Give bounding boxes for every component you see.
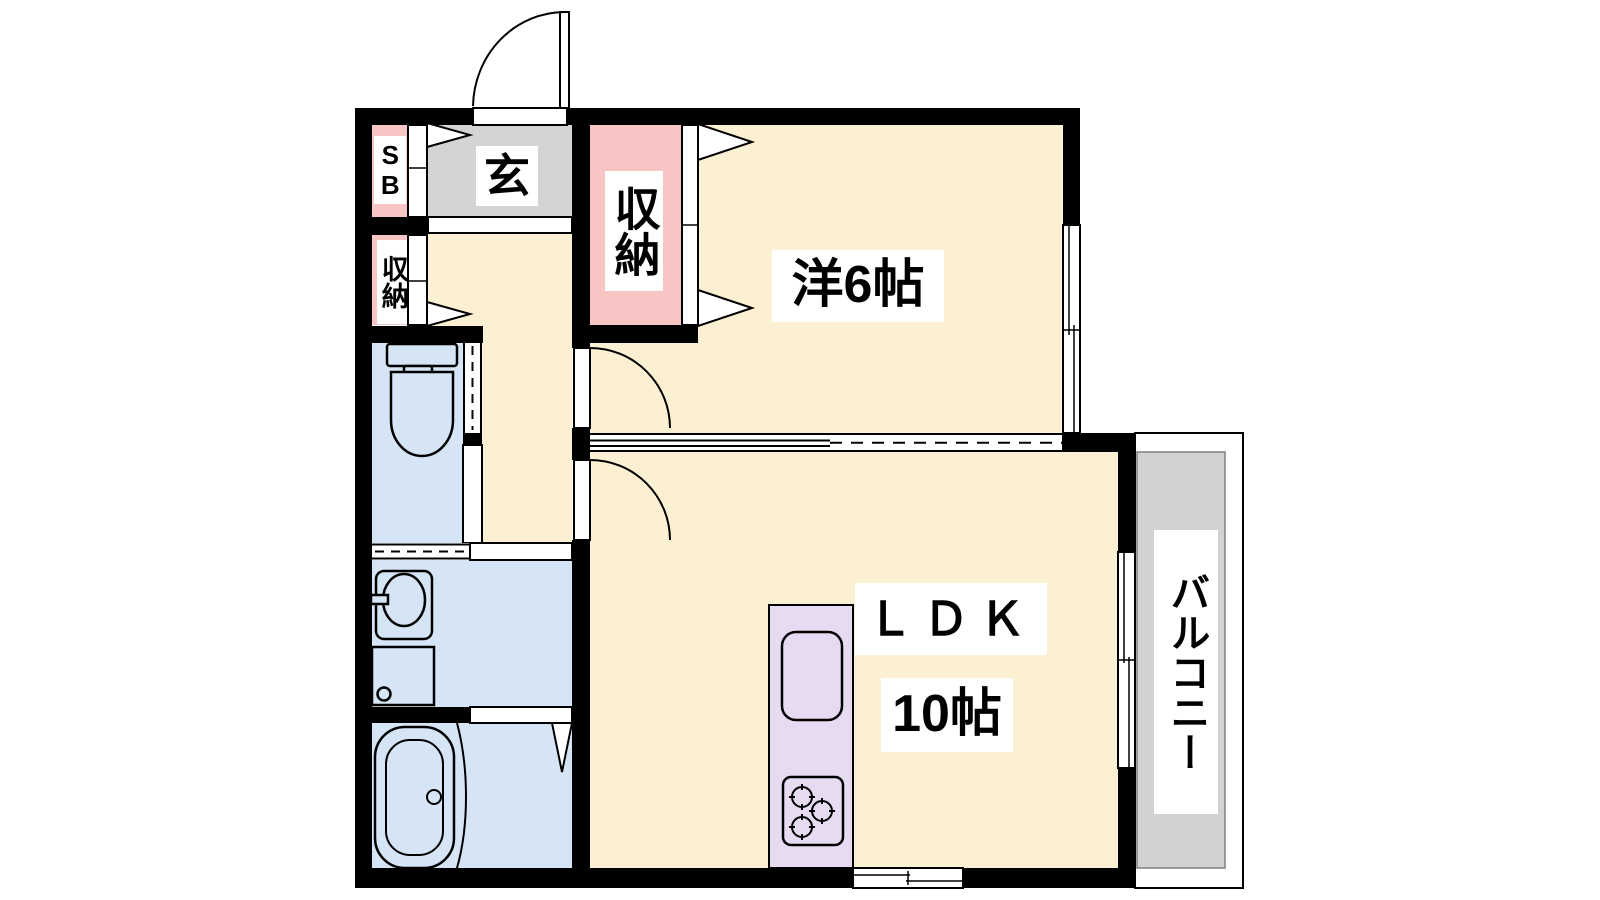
- genkan-step: [428, 217, 572, 233]
- window-western-room: [1063, 225, 1080, 433]
- balcony-label: バルコニー: [1154, 530, 1218, 814]
- storage-room-label: 収納: [605, 171, 663, 291]
- room-floors: [372, 125, 1118, 868]
- floor-plan: SB 玄 収納 収納 洋6帖 ＬＤＫ 10帖 バルコニー: [0, 0, 1600, 900]
- partition-sliding-door: [590, 433, 1062, 452]
- kitchen-sink-icon: [782, 632, 842, 720]
- hallway-floor-upper: [427, 217, 572, 343]
- kitchen-counter: [769, 605, 853, 868]
- washing-machine-icon: [372, 647, 434, 705]
- entrance-label: 玄: [476, 146, 538, 206]
- stove-icon: [783, 777, 843, 845]
- window-balcony-door: [1118, 552, 1135, 768]
- washroom-sliding-door: [372, 543, 572, 560]
- window-ldk-south: [853, 868, 963, 888]
- toilet-icon: [387, 344, 457, 456]
- bathtub-icon: [375, 723, 466, 868]
- storage-hall-label: 収納: [377, 240, 407, 324]
- floor-plan-drawing: [0, 0, 1600, 900]
- western-room-label: 洋6帖: [772, 250, 944, 322]
- entrance-door-swing-icon: [473, 12, 569, 125]
- shoe-box-label: SB: [374, 136, 406, 204]
- washbasin-icon: [371, 571, 432, 639]
- toilet-side-wall: [463, 445, 482, 543]
- hallway-floor-lower: [482, 343, 572, 543]
- hall-thin-wall: [470, 543, 572, 560]
- ldk-label: ＬＤＫ: [855, 583, 1047, 655]
- ldk-size-label: 10帖: [881, 678, 1013, 752]
